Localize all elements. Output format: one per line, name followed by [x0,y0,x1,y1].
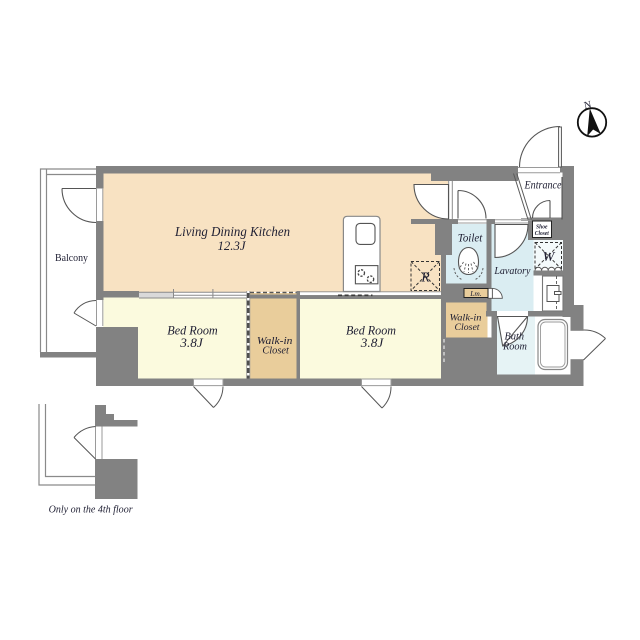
svg-text:Balcony: Balcony [55,253,89,264]
svg-text:12.3J: 12.3J [218,238,247,253]
svg-text:Entrance: Entrance [524,180,562,192]
svg-text:Lavatory: Lavatory [493,265,530,277]
svg-text:Shoe: Shoe [536,225,548,231]
svg-text:R: R [420,270,430,285]
svg-text:Walk-in: Walk-in [450,314,482,324]
svg-text:3.8J: 3.8J [360,336,385,350]
svg-text:Closet: Closet [535,231,549,237]
svg-text:3.8J: 3.8J [179,336,204,350]
svg-text:Closet: Closet [262,346,290,357]
svg-text:Living Dining Kitchen: Living Dining Kitchen [174,224,290,239]
svg-text:Only on the 4th floor: Only on the 4th floor [49,505,134,516]
svg-text:Lm.: Lm. [469,289,482,298]
svg-text:Closet: Closet [455,323,480,333]
svg-text:Room: Room [502,342,527,353]
svg-text:W: W [543,250,556,265]
svg-text:Toilet: Toilet [458,233,483,245]
